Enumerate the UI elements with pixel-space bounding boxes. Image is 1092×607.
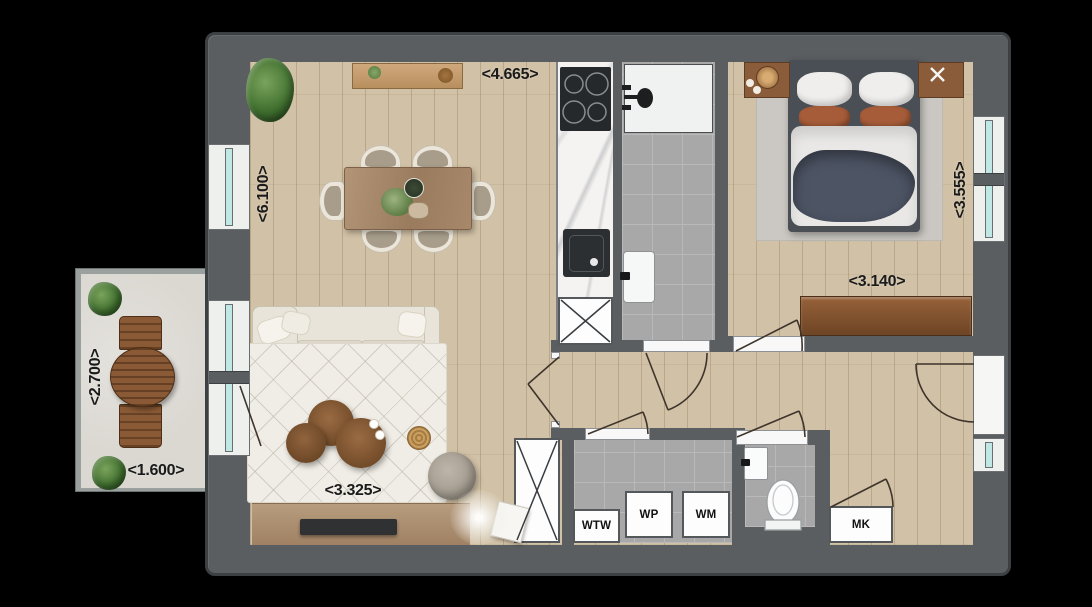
front-door [973, 355, 1005, 435]
dim-bedroom-height: <3.555> [952, 140, 972, 240]
tech-door-opening [585, 428, 650, 440]
balcony-table [110, 347, 175, 407]
bedroom-window [973, 116, 1005, 242]
balcony-chair-bottom [119, 404, 162, 448]
wall-bedroom-bottom [805, 336, 973, 352]
wtw-label: WTW [582, 520, 611, 532]
kitchen-sink [563, 229, 610, 277]
dining-window [208, 144, 250, 230]
wm-unit: WM [682, 491, 730, 538]
table-basket [408, 202, 429, 219]
living-plant-corner [246, 58, 294, 122]
bed [788, 60, 920, 232]
hall-doorway-jamb-bottom [551, 421, 560, 428]
wall-hall-top-right [710, 340, 728, 352]
wall-toilet-left [732, 428, 745, 545]
blanket [793, 150, 915, 222]
coffee-table [286, 423, 326, 463]
wall-toilet-bottom [745, 527, 815, 545]
table-bowl [404, 178, 424, 198]
sideboard-plant [368, 66, 381, 79]
nightstand-lamp [756, 66, 779, 89]
wall-tech-top-right [650, 428, 737, 440]
dim-balcony-height: <2.700> [87, 327, 107, 427]
mk-cupboard: MK [829, 506, 893, 543]
dresser [800, 296, 972, 336]
tv [300, 519, 397, 535]
bed-pillow [797, 72, 852, 106]
cooktop [560, 67, 611, 131]
dim-balcony-width: <1.600> [106, 462, 206, 482]
mk-label: MK [852, 519, 870, 531]
wp-label: WP [640, 509, 659, 521]
dim-bedroom-width: <3.140> [827, 273, 927, 293]
bedroom-door-opening [733, 336, 805, 352]
balcony-door [208, 300, 250, 456]
dining-chair [469, 181, 496, 221]
nightstand [918, 62, 964, 98]
floor-plan: <2.700> <1.600> [0, 0, 1092, 607]
wall-kitchen-bathroom [613, 62, 622, 345]
wall-bathroom-bedroom [715, 62, 728, 352]
toilet-sink [744, 447, 768, 480]
wall-toilet-right [815, 430, 830, 545]
sofa-pillow [396, 310, 427, 339]
front-sidelight [973, 438, 1005, 472]
bathroom-door-opening [643, 340, 710, 352]
dim-living-height: <6.100> [255, 144, 275, 244]
wtw-unit: WTW [573, 509, 620, 543]
toilet-door-opening [736, 430, 808, 445]
dim-living-width: <3.325> [303, 482, 403, 502]
coffee-cup [369, 419, 379, 429]
balcony-plant-top [88, 282, 122, 316]
coffee-cup [375, 430, 385, 440]
dim-dining-width: <4.665> [462, 66, 558, 86]
shower [624, 64, 713, 133]
wm-label: WM [696, 509, 717, 521]
decor-basket [407, 426, 431, 450]
washbasin [623, 251, 655, 303]
white-plant [450, 490, 508, 545]
wp-unit: WP [625, 491, 673, 538]
hall-doorway-jamb-top [551, 352, 560, 359]
dining-chair [319, 181, 346, 221]
balcony-chair-top [119, 316, 162, 350]
sideboard-decor [438, 68, 453, 83]
kitchen-tall-cabinet [558, 297, 613, 345]
bed-pillow [859, 72, 914, 106]
